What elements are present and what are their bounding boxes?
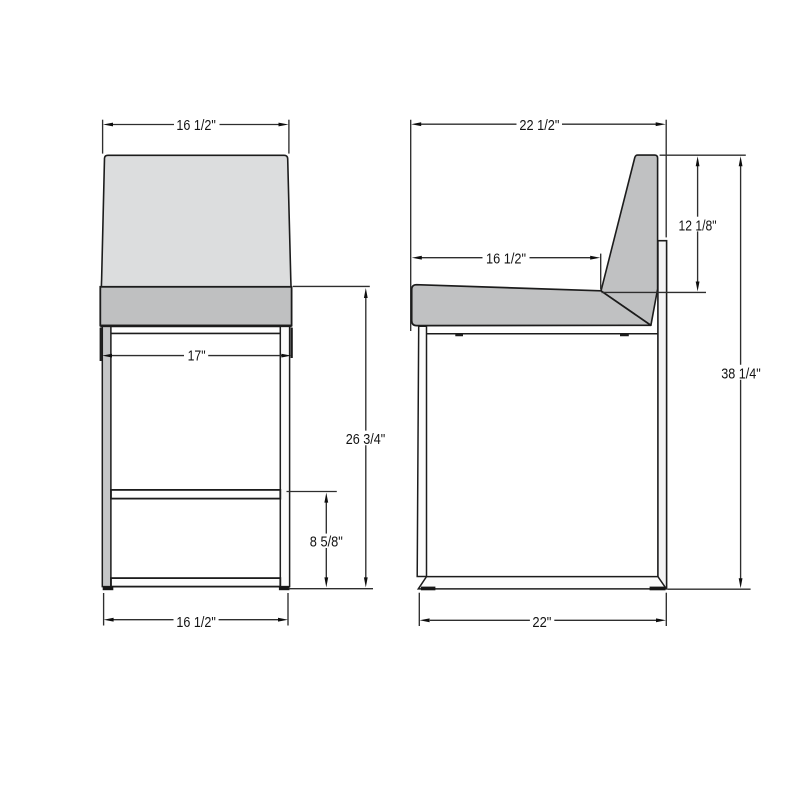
svg-text:8 5/8": 8 5/8" [310, 535, 343, 551]
svg-text:16 1/2": 16 1/2" [486, 251, 526, 267]
svg-text:17": 17" [188, 349, 206, 365]
svg-text:12 1/8": 12 1/8" [679, 218, 717, 234]
svg-text:38 1/4": 38 1/4" [721, 367, 761, 383]
svg-text:26 3/4": 26 3/4" [346, 432, 386, 448]
svg-text:22": 22" [532, 615, 551, 631]
svg-text:16 1/2": 16 1/2" [176, 118, 215, 134]
svg-text:16 1/2": 16 1/2" [176, 615, 215, 631]
svg-text:22 1/2": 22 1/2" [519, 118, 559, 134]
